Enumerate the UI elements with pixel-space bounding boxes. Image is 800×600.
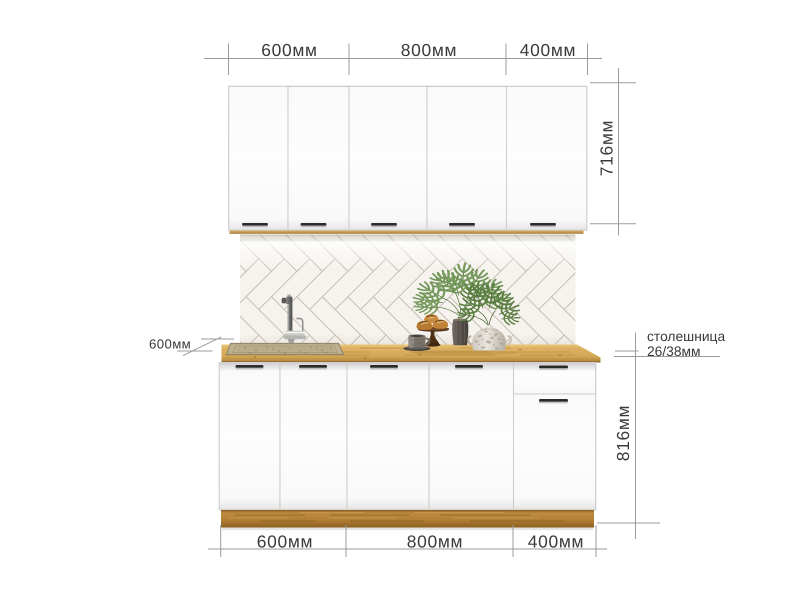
svg-text:800мм: 800мм	[401, 40, 457, 60]
svg-text:600мм: 600мм	[149, 337, 191, 352]
svg-text:816мм: 816мм	[613, 405, 633, 461]
svg-text:26/38мм: 26/38мм	[647, 344, 701, 359]
svg-text:800мм: 800мм	[407, 532, 463, 552]
svg-text:400мм: 400мм	[528, 532, 584, 552]
svg-text:600мм: 600мм	[257, 532, 313, 552]
svg-text:столешница: столешница	[647, 329, 725, 344]
svg-text:716мм: 716мм	[597, 120, 617, 176]
svg-text:600мм: 600мм	[261, 40, 317, 60]
svg-text:400мм: 400мм	[520, 40, 576, 60]
